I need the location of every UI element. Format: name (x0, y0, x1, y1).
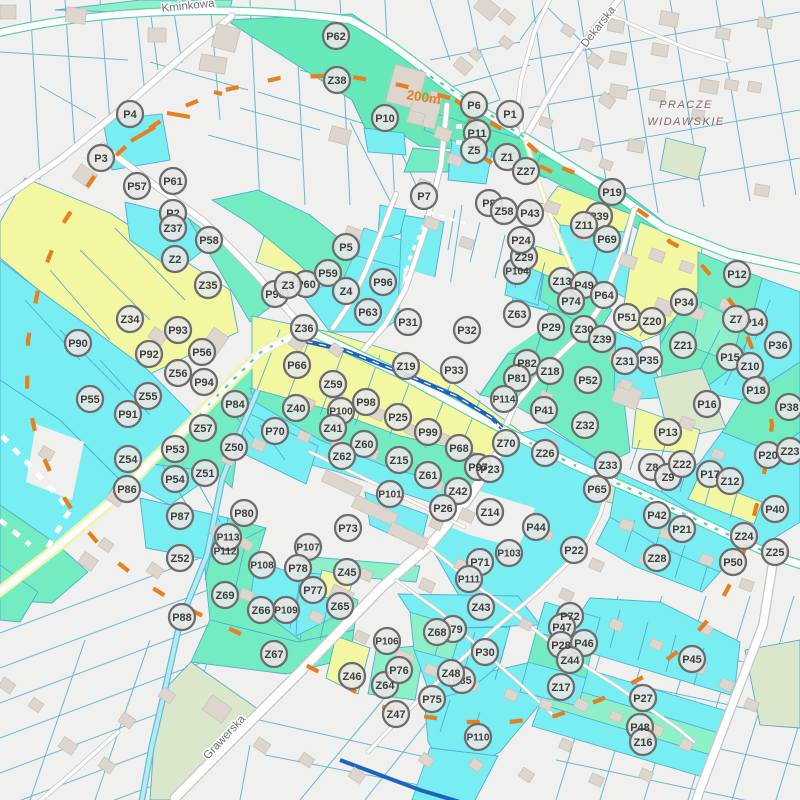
svg-text:Z11: Z11 (575, 220, 593, 232)
svg-text:P93: P93 (168, 325, 188, 337)
svg-text:Z67: Z67 (265, 649, 284, 661)
svg-text:P42: P42 (647, 510, 667, 522)
svg-text:Z58: Z58 (495, 206, 514, 218)
svg-text:P10: P10 (375, 113, 395, 125)
svg-text:P44: P44 (526, 522, 546, 534)
svg-text:P30: P30 (475, 647, 495, 659)
svg-text:Z19: Z19 (397, 361, 416, 373)
svg-text:P111: P111 (458, 575, 481, 586)
svg-text:P65: P65 (587, 484, 607, 496)
svg-text:P51: P51 (617, 312, 637, 324)
svg-text:P73: P73 (338, 523, 358, 535)
svg-text:P96: P96 (373, 277, 393, 289)
svg-text:Z65: Z65 (331, 601, 350, 613)
svg-text:P29: P29 (541, 322, 561, 334)
svg-text:Z68: Z68 (428, 627, 447, 639)
svg-text:Z29: Z29 (515, 252, 534, 264)
svg-text:P92: P92 (139, 349, 159, 361)
svg-text:P56: P56 (192, 347, 212, 359)
svg-text:Z57: Z57 (194, 423, 213, 435)
svg-text:P32: P32 (457, 325, 477, 337)
svg-text:Z54: Z54 (119, 454, 139, 466)
svg-text:Z56: Z56 (169, 368, 188, 380)
svg-text:P78: P78 (288, 563, 308, 575)
svg-text:Z41: Z41 (324, 423, 343, 435)
svg-text:Z31: Z31 (616, 356, 635, 368)
svg-text:P57: P57 (127, 181, 147, 193)
svg-text:P103: P103 (497, 549, 521, 560)
svg-text:P71: P71 (470, 557, 490, 569)
svg-text:Z62: Z62 (333, 451, 352, 463)
svg-text:Z28: Z28 (648, 553, 667, 565)
svg-text:Z18: Z18 (541, 366, 560, 378)
svg-text:P87: P87 (170, 511, 190, 523)
svg-text:P19: P19 (602, 187, 622, 199)
svg-text:P43: P43 (520, 208, 540, 220)
svg-text:P25: P25 (388, 412, 408, 424)
svg-text:Z15: Z15 (390, 455, 409, 467)
svg-text:Z45: Z45 (338, 567, 357, 579)
svg-text:Z13: Z13 (553, 276, 572, 288)
svg-text:Z47: Z47 (387, 709, 406, 721)
svg-text:P31: P31 (398, 317, 418, 329)
svg-text:Z2: Z2 (169, 254, 182, 266)
svg-text:P68: P68 (449, 443, 469, 455)
svg-text:Z66: Z66 (252, 605, 271, 617)
svg-text:Z8: Z8 (646, 462, 659, 474)
svg-text:P77: P77 (303, 585, 323, 597)
svg-text:P80: P80 (234, 508, 254, 520)
svg-text:Z27: Z27 (517, 166, 536, 178)
svg-text:Z40: Z40 (287, 403, 306, 415)
svg-text:Z5: Z5 (468, 145, 481, 157)
svg-text:Z37: Z37 (164, 223, 183, 235)
svg-text:P15: P15 (720, 352, 740, 364)
svg-text:Z52: Z52 (171, 553, 190, 565)
svg-text:P75: P75 (422, 694, 442, 706)
svg-text:P107: P107 (296, 543, 320, 554)
svg-text:P91: P91 (118, 409, 138, 421)
svg-text:PRACZE: PRACZE (659, 99, 713, 111)
svg-text:Z50: Z50 (225, 442, 244, 454)
svg-text:P13: P13 (658, 427, 678, 439)
svg-text:Z48: Z48 (442, 668, 461, 680)
svg-text:P58: P58 (199, 235, 219, 247)
svg-text:Z21: Z21 (674, 340, 693, 352)
svg-text:P48: P48 (630, 722, 650, 734)
svg-text:P20: P20 (758, 450, 778, 462)
svg-text:P1: P1 (503, 109, 516, 121)
svg-text:P86: P86 (117, 484, 137, 496)
svg-text:Z30: Z30 (575, 324, 594, 336)
svg-text:Z1: Z1 (501, 152, 514, 164)
svg-text:Z64: Z64 (376, 680, 396, 692)
svg-text:P109: P109 (274, 606, 298, 617)
svg-text:P45: P45 (682, 654, 702, 666)
svg-text:Z22: Z22 (673, 459, 692, 471)
svg-text:Z17: Z17 (552, 682, 571, 694)
svg-text:Z35: Z35 (199, 280, 218, 292)
svg-text:Z23: Z23 (781, 446, 800, 458)
svg-text:Z24: Z24 (735, 531, 755, 543)
svg-text:Z12: Z12 (721, 476, 740, 488)
svg-text:P54: P54 (165, 474, 185, 486)
svg-text:Z36: Z36 (295, 323, 314, 335)
svg-text:Z32: Z32 (576, 420, 595, 432)
svg-text:Z20: Z20 (643, 316, 662, 328)
svg-text:Z51: Z51 (196, 468, 215, 480)
svg-text:Z26: Z26 (536, 448, 555, 460)
svg-text:Z4: Z4 (340, 286, 354, 298)
svg-text:P110: P110 (467, 733, 490, 744)
svg-text:Z25: Z25 (766, 547, 785, 559)
svg-text:P100: P100 (329, 407, 353, 418)
svg-text:P52: P52 (578, 375, 598, 387)
svg-text:P64: P64 (594, 290, 614, 302)
svg-text:Z9: Z9 (662, 472, 675, 484)
svg-text:P82: P82 (517, 358, 537, 370)
svg-text:P40: P40 (765, 504, 785, 516)
svg-text:P113: P113 (217, 533, 240, 544)
svg-text:Z7: Z7 (730, 314, 743, 326)
svg-text:P47: P47 (552, 622, 572, 634)
svg-text:P90: P90 (68, 338, 88, 350)
svg-text:P17: P17 (700, 469, 720, 481)
svg-text:P3: P3 (94, 153, 107, 165)
svg-text:P28: P28 (551, 640, 571, 652)
svg-text:P55: P55 (80, 394, 100, 406)
svg-text:P69: P69 (597, 234, 617, 246)
svg-text:Z16: Z16 (634, 737, 653, 749)
svg-text:P4: P4 (123, 109, 137, 121)
svg-text:P22: P22 (564, 545, 584, 557)
svg-text:Z14: Z14 (481, 507, 501, 519)
svg-text:P106: P106 (375, 637, 399, 648)
svg-text:P108: P108 (250, 561, 274, 572)
svg-text:P99: P99 (418, 427, 438, 439)
svg-text:Z39: Z39 (593, 334, 612, 346)
svg-text:WIDAWSKIE: WIDAWSKIE (647, 116, 724, 128)
svg-text:P53: P53 (165, 444, 185, 456)
svg-text:P38: P38 (779, 402, 799, 414)
svg-text:Z63: Z63 (508, 309, 527, 321)
svg-text:P84: P84 (225, 399, 245, 411)
svg-text:P114: P114 (493, 395, 516, 406)
svg-text:P63: P63 (358, 307, 378, 319)
svg-text:Z43: Z43 (472, 602, 491, 614)
svg-text:P12: P12 (727, 269, 747, 281)
svg-text:Z34: Z34 (121, 314, 141, 326)
svg-text:P62: P62 (326, 31, 346, 43)
svg-text:Z46: Z46 (343, 671, 362, 683)
svg-text:P41: P41 (534, 405, 554, 417)
svg-text:Z42: Z42 (449, 486, 468, 498)
svg-text:P35: P35 (639, 355, 659, 367)
svg-text:P16: P16 (697, 399, 717, 411)
svg-text:P94: P94 (194, 377, 214, 389)
svg-text:P81: P81 (507, 373, 527, 385)
svg-text:P50: P50 (723, 557, 743, 569)
svg-text:P98: P98 (356, 397, 376, 409)
svg-text:Z10: Z10 (741, 361, 760, 373)
svg-text:P59: P59 (318, 268, 338, 280)
svg-text:P7: P7 (417, 191, 430, 203)
svg-text:P74: P74 (561, 296, 581, 308)
svg-text:Z61: Z61 (419, 470, 438, 482)
svg-text:P76: P76 (389, 665, 409, 677)
svg-text:P24: P24 (511, 235, 531, 247)
svg-text:P6: P6 (467, 100, 480, 112)
svg-text:Z55: Z55 (139, 391, 158, 403)
svg-text:Z59: Z59 (324, 379, 343, 391)
svg-text:Z70: Z70 (497, 438, 516, 450)
svg-text:P101: P101 (378, 490, 402, 501)
svg-text:P36: P36 (768, 340, 788, 352)
svg-text:P34: P34 (674, 297, 694, 309)
svg-text:P88: P88 (172, 612, 192, 624)
svg-text:P21: P21 (672, 524, 692, 536)
svg-text:Z33: Z33 (599, 460, 618, 472)
svg-text:Z3: Z3 (282, 280, 295, 292)
svg-text:P18: P18 (746, 385, 766, 397)
svg-text:P26: P26 (433, 503, 453, 515)
svg-text:P104: P104 (505, 267, 529, 278)
svg-text:P5: P5 (339, 242, 352, 254)
svg-text:P112: P112 (214, 547, 237, 558)
svg-text:P46: P46 (574, 638, 594, 650)
svg-text:P70: P70 (265, 426, 285, 438)
svg-text:Z44: Z44 (561, 655, 581, 667)
svg-text:P66: P66 (287, 360, 307, 372)
svg-text:P49: P49 (574, 280, 594, 292)
svg-text:Z60: Z60 (355, 439, 374, 451)
svg-text:P27: P27 (633, 693, 653, 705)
svg-text:P61: P61 (163, 176, 183, 188)
svg-text:Z38: Z38 (328, 75, 347, 87)
svg-text:P23: P23 (480, 464, 500, 476)
svg-text:Z69: Z69 (216, 590, 235, 602)
svg-text:P33: P33 (444, 365, 464, 377)
